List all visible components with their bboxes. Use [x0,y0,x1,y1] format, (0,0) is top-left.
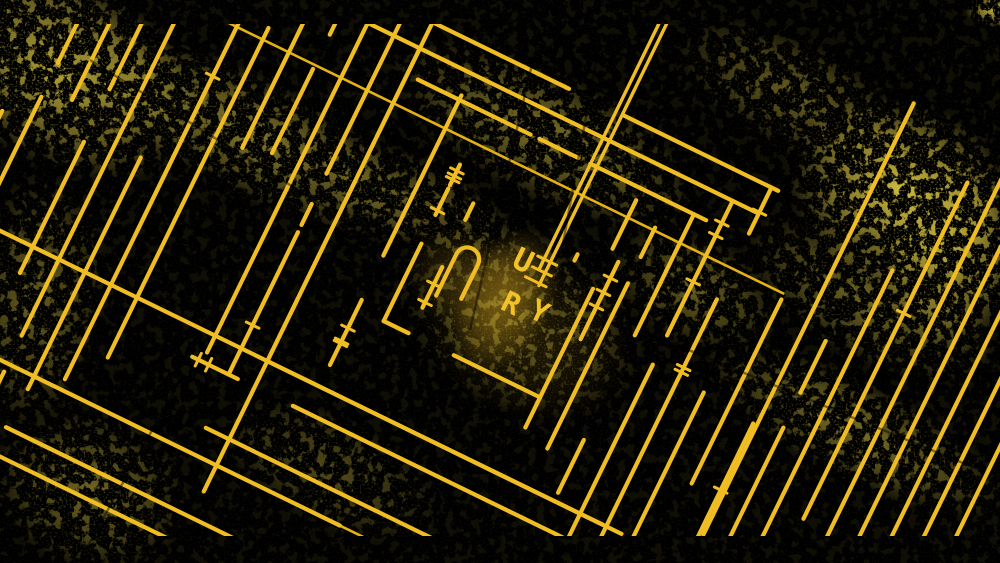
artwork-stage: U R Y [0,0,1000,563]
grunge-texture [0,0,1000,563]
maze-segment [574,254,577,260]
artwork-canvas: U R Y [0,0,1000,563]
